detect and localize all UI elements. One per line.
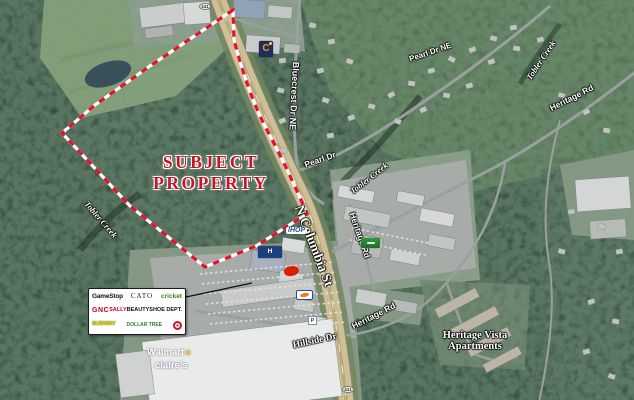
cricket-wireless-logo: cricket: [161, 294, 182, 301]
cato-logo: CATO: [131, 293, 153, 300]
blue-p-sign: P: [308, 316, 317, 325]
heritage-vista-line1: Heritage Vista: [428, 330, 522, 341]
aerial-map: SUBJECT PROPERTY N Columbia St Bluecrest…: [0, 0, 634, 400]
red-circle-logo: [173, 321, 182, 330]
subject-property-line1: SUBJECT: [116, 152, 306, 173]
hampton-hotel-logo: H: [258, 246, 282, 258]
green-store-mark: [367, 242, 375, 244]
route-shield-441-bottom: 441: [342, 386, 354, 393]
claires-logo: claire's: [155, 360, 187, 371]
heritage-vista-line2: Apartments: [428, 341, 522, 352]
orange-fish-restaurant-logo: [296, 290, 313, 300]
ihop-logo: IHOP: [286, 227, 307, 234]
subway-logo: SUBWAY: [92, 322, 116, 328]
walmart-logo: Walmart✳: [147, 347, 191, 358]
dollar-tree-logo: DOLLAR TREE: [127, 323, 163, 328]
tenant-logo-box: GameStop CATO cricket GNC SALLYBEAUTY SH…: [88, 288, 186, 335]
heritage-vista-apartments-label: Heritage Vista Apartments: [428, 330, 522, 352]
subject-property-label: SUBJECT PROPERTY: [116, 152, 306, 193]
fish-icon: [300, 292, 310, 298]
sally-beauty-logo: SALLYBEAUTY: [109, 308, 149, 314]
comfort-hotel-logo: C: [259, 41, 273, 57]
green-store-logo: [361, 238, 380, 248]
shoe-dept-logo: SHOE DEPT.: [149, 308, 182, 314]
subject-property-line2: PROPERTY: [116, 173, 306, 194]
route-shield-441-top: 441: [199, 3, 211, 10]
gnc-logo: GNC: [92, 307, 109, 314]
walmart-spark-icon: ✳: [185, 350, 191, 357]
gamestop-logo: GameStop: [92, 294, 123, 301]
